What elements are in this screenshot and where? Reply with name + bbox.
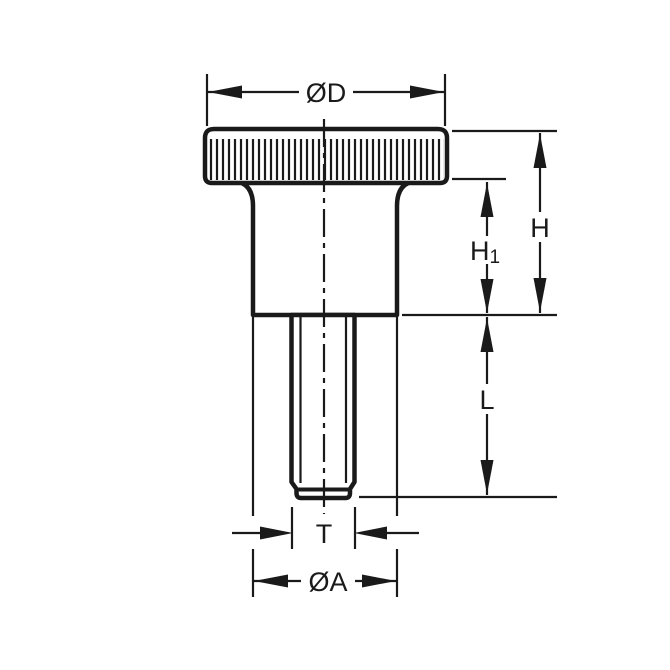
h1-arrow-up [481, 183, 494, 217]
knurled-thumb-screw-drawing: ØD H H1 L T [0, 0, 670, 670]
h1-label-subscript: 1 [490, 247, 501, 268]
h-arrow-up [534, 134, 547, 168]
oa-arrow-left [254, 575, 288, 588]
od-arrow-right [410, 86, 444, 99]
dimension-t: T [232, 507, 419, 549]
oa-label: ØA [308, 567, 347, 597]
dimension-h: H [452, 131, 557, 313]
h1-arrow-down [481, 279, 494, 313]
t-label: T [316, 519, 333, 549]
t-arrow-left [260, 527, 293, 540]
technical-drawing-page: ØD H H1 L T [0, 0, 670, 670]
oa-arrow-right [362, 575, 396, 588]
t-arrow-right [354, 527, 387, 540]
h-arrow-down [534, 278, 547, 312]
dimension-l: L [359, 317, 557, 497]
l-arrow-down [481, 460, 494, 494]
h1-label-base: H [470, 236, 490, 266]
dimension-h1: H1 [452, 179, 507, 313]
dimension-od: ØD [207, 74, 445, 126]
l-arrow-up [481, 318, 494, 352]
l-label: L [479, 385, 494, 415]
knurl-band [208, 139, 444, 180]
od-label: ØD [306, 78, 347, 108]
h-label: H [530, 213, 550, 243]
od-arrow-left [208, 86, 242, 99]
